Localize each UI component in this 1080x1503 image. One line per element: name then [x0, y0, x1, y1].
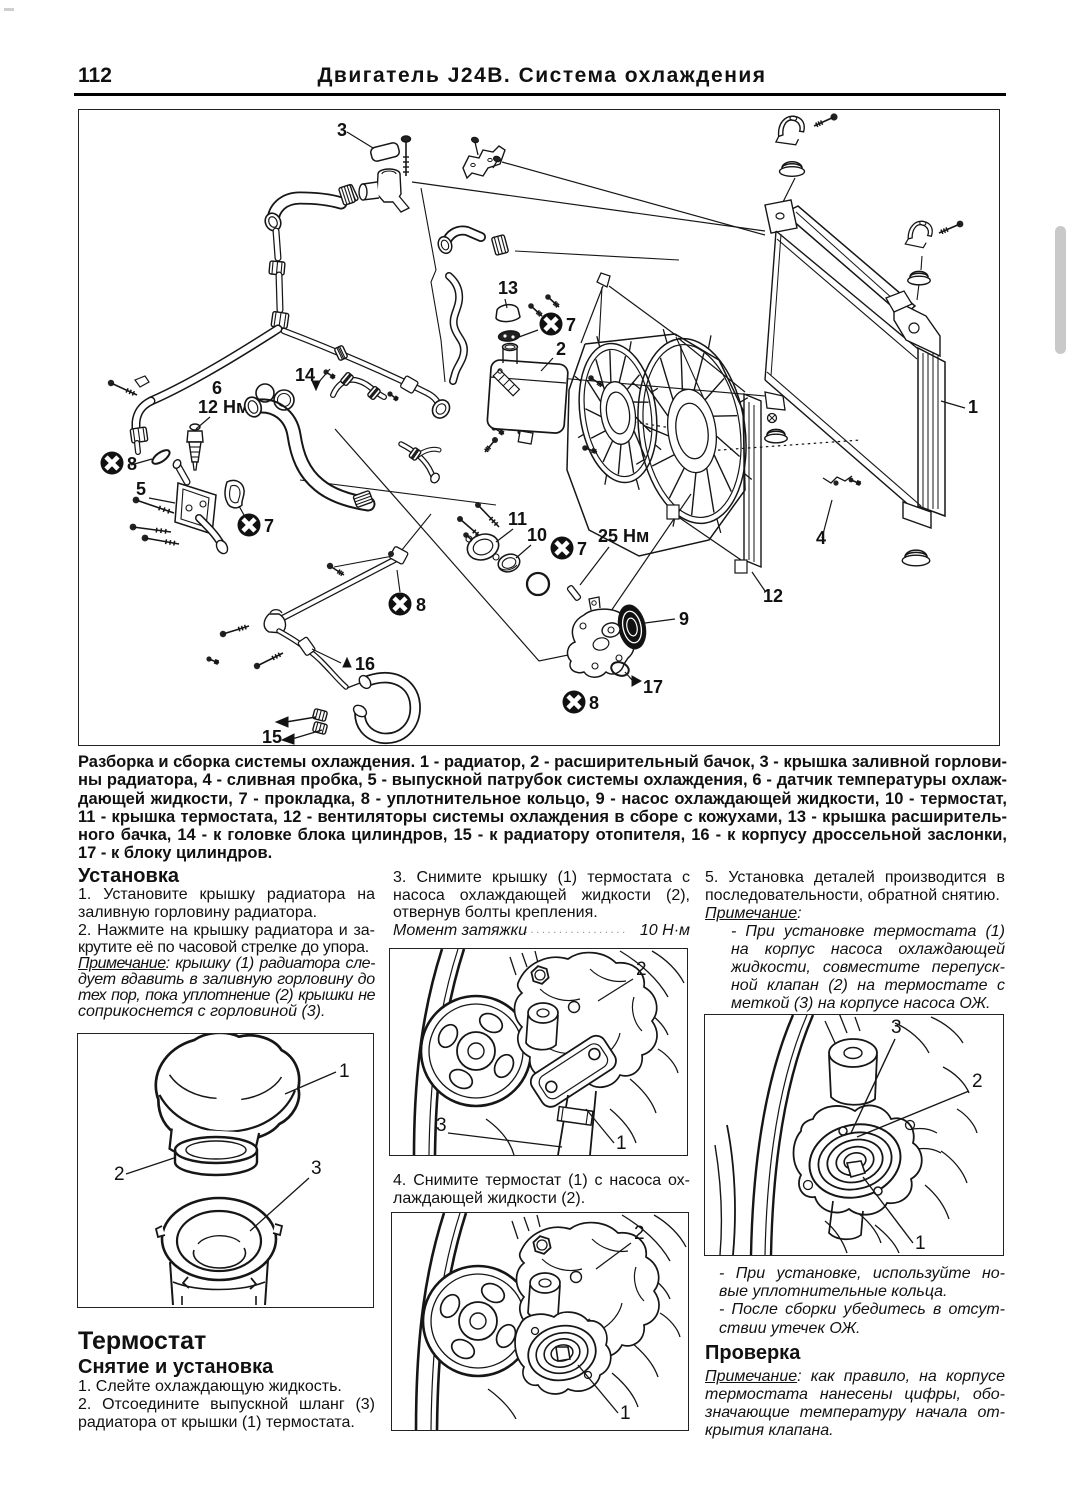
svg-text:1: 1: [339, 1061, 350, 1082]
svg-text:8: 8: [416, 595, 426, 615]
svg-text:12: 12: [763, 586, 783, 606]
svg-text:8: 8: [589, 693, 599, 713]
svg-text:5: 5: [136, 479, 146, 499]
svg-text:15: 15: [262, 727, 282, 745]
svg-text:9: 9: [679, 609, 689, 629]
svg-text:7: 7: [577, 539, 587, 559]
svg-text:7: 7: [264, 516, 274, 536]
svg-text:12 Нм: 12 Нм: [198, 397, 249, 417]
svg-text:1: 1: [915, 1233, 926, 1254]
svg-text:13: 13: [498, 278, 518, 298]
svg-text:7: 7: [566, 315, 576, 335]
svg-text:3: 3: [311, 1158, 322, 1179]
svg-text:2: 2: [972, 1071, 983, 1092]
svg-text:17: 17: [643, 677, 663, 697]
svg-text:2: 2: [634, 1223, 645, 1244]
svg-text:3: 3: [891, 1017, 902, 1038]
svg-text:10: 10: [527, 525, 547, 545]
svg-text:11: 11: [508, 509, 527, 529]
svg-text:1: 1: [620, 1403, 631, 1424]
svg-text:25 Нм: 25 Нм: [598, 526, 649, 546]
svg-text:3: 3: [337, 120, 347, 140]
svg-text:16: 16: [355, 654, 375, 674]
svg-text:2: 2: [114, 1164, 125, 1185]
svg-text:2: 2: [556, 339, 566, 359]
svg-text:4: 4: [816, 528, 826, 548]
svg-text:3: 3: [436, 1115, 447, 1136]
svg-text:1: 1: [968, 397, 978, 417]
svg-text:1: 1: [616, 1133, 627, 1154]
svg-text:2: 2: [636, 959, 647, 980]
svg-text:6: 6: [212, 378, 222, 398]
